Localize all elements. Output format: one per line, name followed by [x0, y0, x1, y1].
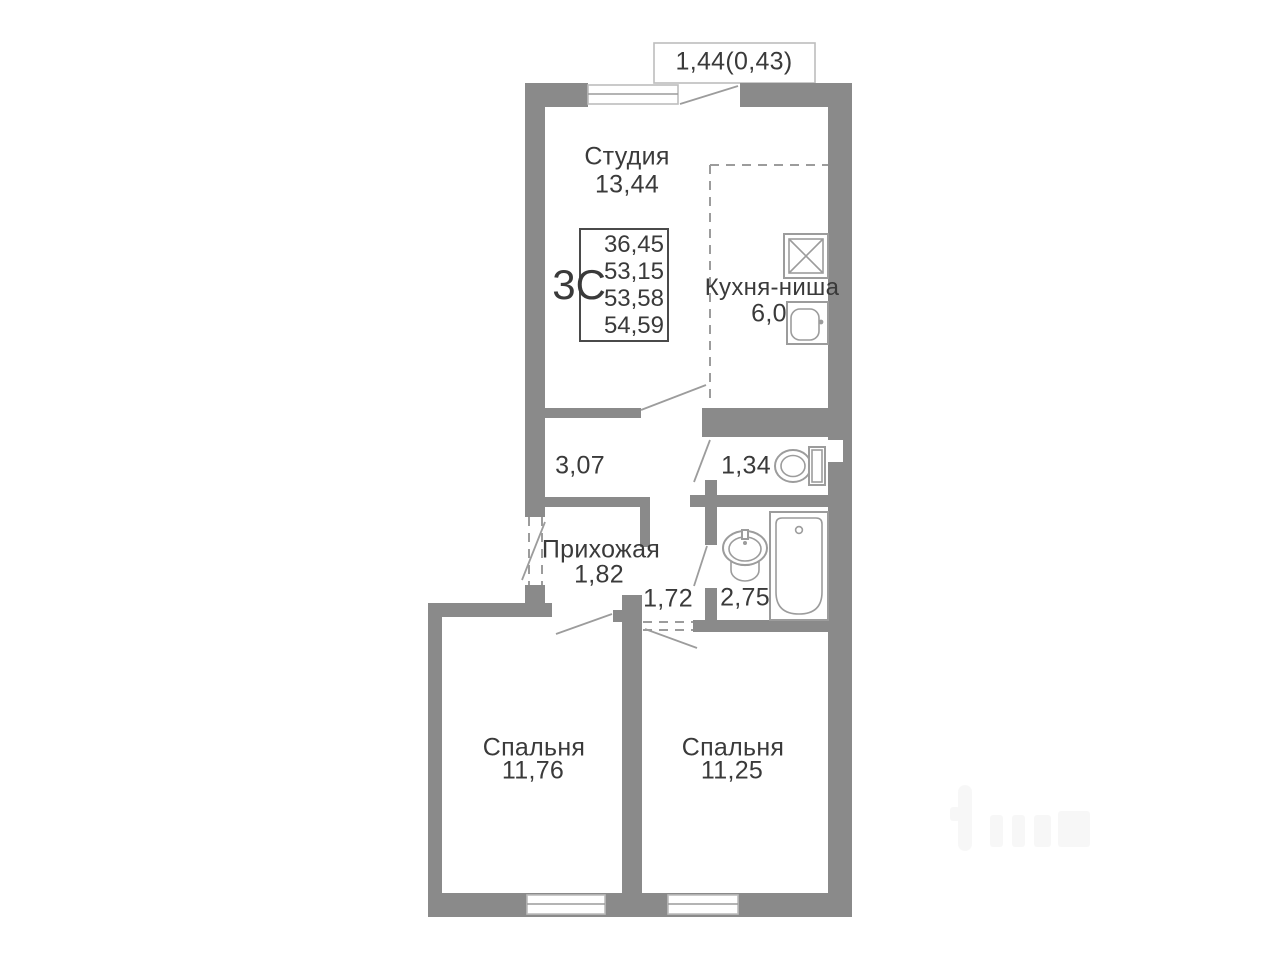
bedroom1-area-label: 11,76: [502, 757, 564, 786]
hallway-area-label: 1,82: [574, 561, 624, 590]
apartment-areas: 36,45 53,15 53,58 54,59: [604, 231, 667, 339]
balcony-area-label: 1,44(0,43): [676, 48, 793, 77]
wall-corridor-top: [541, 408, 641, 418]
bathtub-icon: [770, 512, 828, 620]
wall-toilet-partition: [705, 480, 717, 497]
bathroom-area-label: 2,75: [720, 584, 770, 613]
bedroom2-window: [668, 895, 738, 914]
studio-area-label: 13,44: [595, 171, 659, 200]
wall-bath-partition-lower: [705, 588, 717, 622]
watermark: [950, 785, 1140, 855]
wall-left-lower: [428, 603, 442, 917]
wc-area-label: 1,34: [721, 452, 771, 481]
stamp-area-total: 54,59: [604, 312, 664, 339]
studio-door-leaf: [641, 385, 706, 410]
apartment-type-label: 3С: [552, 264, 606, 306]
wall-door-stub: [613, 610, 642, 622]
wall-bedroom2-top: [693, 620, 852, 632]
stamp-area-1: 53,15: [604, 258, 664, 285]
floorplan-page: 1,44(0,43) Студия 13,44 Кухня-ниша 6,0 3…: [0, 0, 1280, 960]
kitchen-sink-icon: [787, 302, 828, 344]
bedroom1-window: [527, 895, 605, 914]
wall-kitchen-bottom: [702, 408, 828, 437]
lobby-area-label: 1,72: [643, 585, 693, 614]
toilet-door-leaf: [694, 440, 710, 482]
wall-left-upper: [525, 83, 545, 517]
kitchen-area-label: 6,0: [751, 300, 787, 329]
wall-bedroom1-top: [428, 603, 552, 617]
bath-sink-icon: [723, 530, 767, 581]
wall-corridor-bottom: [541, 497, 650, 507]
studio-name-label: Студия: [584, 143, 669, 172]
balcony-door-leaf: [680, 86, 738, 104]
wall-niche: [828, 440, 843, 462]
wall-central: [622, 595, 642, 893]
apartment-stamp: 3С 36,45 53,15 53,58 54,59: [579, 228, 669, 342]
bathroom-door-leaf: [694, 546, 707, 586]
kitchen-name-label: Кухня-ниша: [705, 274, 839, 302]
toilet-icon: [775, 447, 825, 485]
bedroom1-door-leaf: [556, 614, 612, 634]
bedroom2-area-label: 11,25: [701, 757, 763, 786]
stamp-area-living: 36,45: [604, 231, 664, 258]
bedroom2-door-leaf: [645, 629, 697, 648]
wall-right: [828, 83, 852, 917]
corridor-area-label: 3,07: [555, 452, 605, 481]
stove-icon: [784, 234, 828, 278]
studio-window: [588, 85, 678, 104]
wall-bath-partition-upper: [705, 507, 717, 545]
stamp-area-2: 53,58: [604, 285, 664, 312]
wall-bottom: [428, 893, 852, 917]
